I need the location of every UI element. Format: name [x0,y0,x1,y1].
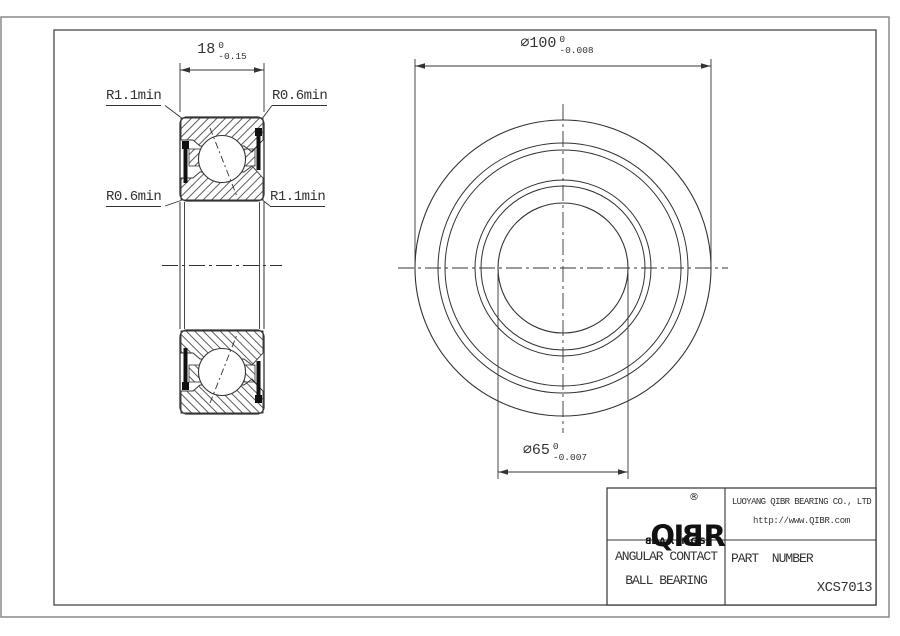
width-dimension-nominal: 18 [197,42,215,57]
fillet-label-bottom-right: R1.1min [270,190,325,207]
outer-diameter-dimension-text: ∅ 100 0 -0.008 [487,36,627,57]
part-number-value: XCS7013 [726,580,877,596]
bore-diameter-tolerance: 0 -0.007 [553,441,587,464]
bore-diameter-dimension-text: ∅ 65 0 -0.007 [490,443,620,464]
diameter-symbol: ∅ [520,36,529,51]
front-view-linework [398,104,728,433]
width-dimension-text: 18 0 -0.15 [160,42,284,63]
drawing-sheet: 18 0 -0.15 ∅ 100 0 -0.008 ∅ 65 0 -0.007 … [0,0,900,636]
dimension-width-18 [180,63,264,112]
diameter-symbol: ∅ [523,443,532,458]
product-type-line1: ANGULAR CONTACT [607,549,725,564]
section-view-linework [162,117,282,414]
part-number-label: PART NUMBER [731,551,813,566]
fillet-label-top-left: R1.1min [106,89,161,106]
outer-diameter-nominal: 100 [529,36,556,51]
product-type-line2: BALL BEARING [607,573,725,588]
fillet-label-top-right: R0.6min [272,89,327,106]
bore-diameter-nominal: 65 [532,443,550,458]
company-website: http://www.QIBR.com [727,516,876,526]
company-name: LUOYANG QIBR BEARING CO., LTD [727,497,876,507]
outer-diameter-tolerance: 0 -0.008 [559,34,593,57]
width-dimension-tolerance: 0 -0.15 [218,40,247,63]
registered-trademark-icon: ® [689,492,699,503]
fillet-label-bottom-left: R0.6min [106,190,161,207]
